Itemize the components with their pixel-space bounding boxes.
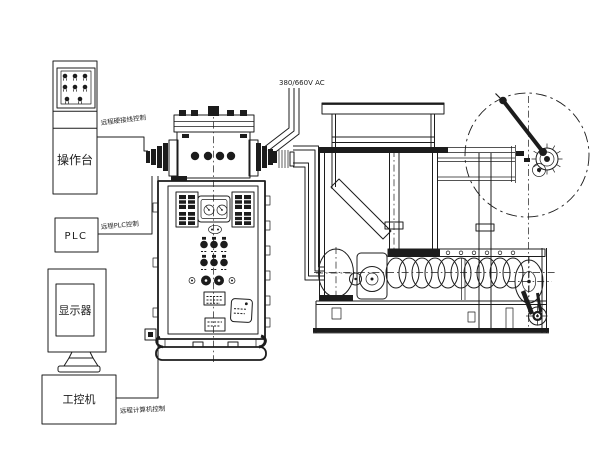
operator-console-box: 操作台 (53, 61, 97, 194)
certification-plate (230, 298, 252, 322)
discharge-chute (331, 179, 391, 239)
diagram-canvas: 操作台 PLC 显示器 工控机 远程硬接线控制 远程PLC控制 远程计算机控制 … (0, 0, 600, 450)
adjuster-lever (496, 94, 548, 157)
oval-nameplate (209, 225, 222, 233)
frame-rails (437, 145, 516, 183)
console-label: 操作台 (57, 152, 93, 167)
supports (320, 150, 547, 333)
display-window (198, 196, 230, 222)
cable-gland-right (249, 140, 294, 176)
hardwire-link-label: 远程硬接线控制 (100, 112, 147, 127)
drive-motor (316, 247, 362, 302)
plc-link-label: 远程PLC控制 (100, 219, 139, 231)
phantom-circle (465, 93, 589, 327)
cabinet-body (153, 107, 270, 362)
cabinet-top-flange (174, 106, 254, 132)
monitor-label: 显示器 (59, 304, 92, 317)
computer-link-label: 远程计算机控制 (120, 404, 166, 415)
gearbox (357, 253, 387, 299)
feeder-machine (313, 93, 589, 333)
cable-gland-left (146, 140, 178, 176)
chain-drive (523, 291, 549, 328)
computer-label: 工控机 (63, 392, 96, 406)
indicator-lamps (200, 237, 228, 270)
console-buttons (63, 74, 88, 104)
power-supply: 380/660V AC (263, 79, 325, 154)
power-label: 380/660V AC (279, 79, 325, 87)
power-cables (263, 88, 299, 154)
plc-label: PLC (64, 231, 87, 242)
industrial-computer-box: 工控机 (42, 375, 116, 424)
control-cabinet (145, 106, 294, 362)
nameplate-lower (205, 318, 225, 331)
terminal-block-right (232, 192, 254, 227)
monitor: 显示器 (48, 269, 106, 372)
hardwire-link-line (97, 137, 148, 151)
push-buttons (189, 276, 235, 286)
terminal-block-left (176, 192, 198, 227)
plc-box: PLC (55, 218, 98, 252)
hopper (319, 103, 448, 189)
base-frame (313, 301, 549, 333)
schematic-page: 操作台 PLC 显示器 工控机 远程硬接线控制 远程PLC控制 远程计算机控制 … (0, 0, 600, 450)
nameplate-upper (204, 292, 225, 305)
end-pulley (508, 256, 552, 306)
